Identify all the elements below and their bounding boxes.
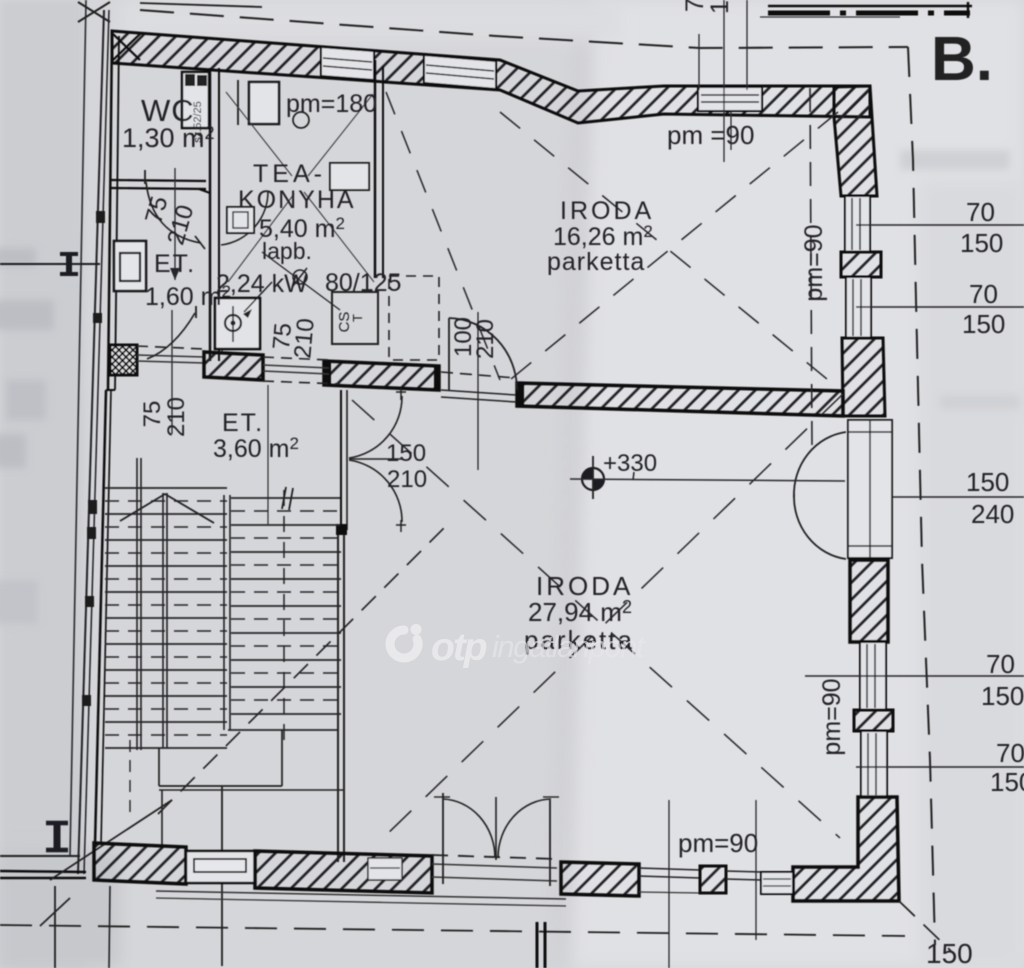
svg-text:ET.: ET. [154, 250, 196, 278]
svg-text:240: 240 [971, 499, 1014, 529]
svg-text:CS: CS [336, 312, 353, 333]
svg-text:70: 70 [986, 649, 1015, 679]
svg-text:150: 150 [962, 309, 1005, 339]
svg-text:+330: +330 [603, 450, 657, 477]
svg-text:pm =90: pm =90 [667, 120, 754, 150]
svg-text:150: 150 [386, 440, 426, 467]
svg-text:210: 210 [163, 397, 190, 437]
svg-text:1,30 m2: 1,30 m2 [122, 123, 215, 153]
svg-text:70: 70 [996, 738, 1024, 768]
svg-text:80/125: 80/125 [325, 269, 401, 297]
svg-text:70: 70 [969, 279, 998, 309]
svg-text:210: 210 [289, 317, 319, 359]
svg-text:70: 70 [966, 197, 995, 227]
svg-text:lapb.: lapb. [262, 238, 312, 264]
svg-text:150: 150 [706, 0, 734, 14]
svg-text:IRODA: IRODA [560, 197, 654, 225]
svg-text:B.: B. [931, 25, 993, 94]
svg-text:pm=180: pm=180 [286, 90, 377, 118]
svg-text:3,60 m2: 3,60 m2 [213, 434, 299, 463]
svg-text:ingatlanpont: ingatlanpont [492, 629, 646, 664]
svg-text:27,94 m2: 27,94 m2 [528, 597, 632, 627]
svg-text:210: 210 [387, 466, 427, 493]
svg-text:2,24 kW: 2,24 kW [216, 270, 308, 298]
svg-text:otp: otp [431, 626, 487, 669]
svg-text:150: 150 [966, 467, 1009, 497]
svg-text:pm=90: pm=90 [818, 678, 846, 755]
svg-text:pm=90: pm=90 [800, 224, 828, 301]
svg-text:ET.: ET. [222, 409, 264, 437]
svg-text:75: 75 [139, 401, 166, 428]
svg-text:TEA-: TEA- [253, 160, 326, 188]
svg-text:pm=90: pm=90 [678, 828, 758, 858]
svg-text:16,26 m2: 16,26 m2 [553, 222, 653, 251]
svg-text:210: 210 [472, 319, 499, 359]
svg-text:150: 150 [981, 681, 1024, 711]
svg-text:parketta: parketta [547, 248, 645, 276]
svg-text:70: 70 [681, 0, 709, 12]
svg-text:KONYHA: KONYHA [238, 186, 356, 214]
svg-text:150: 150 [926, 938, 973, 968]
svg-text:150: 150 [990, 767, 1024, 797]
svg-text:150: 150 [960, 228, 1003, 258]
